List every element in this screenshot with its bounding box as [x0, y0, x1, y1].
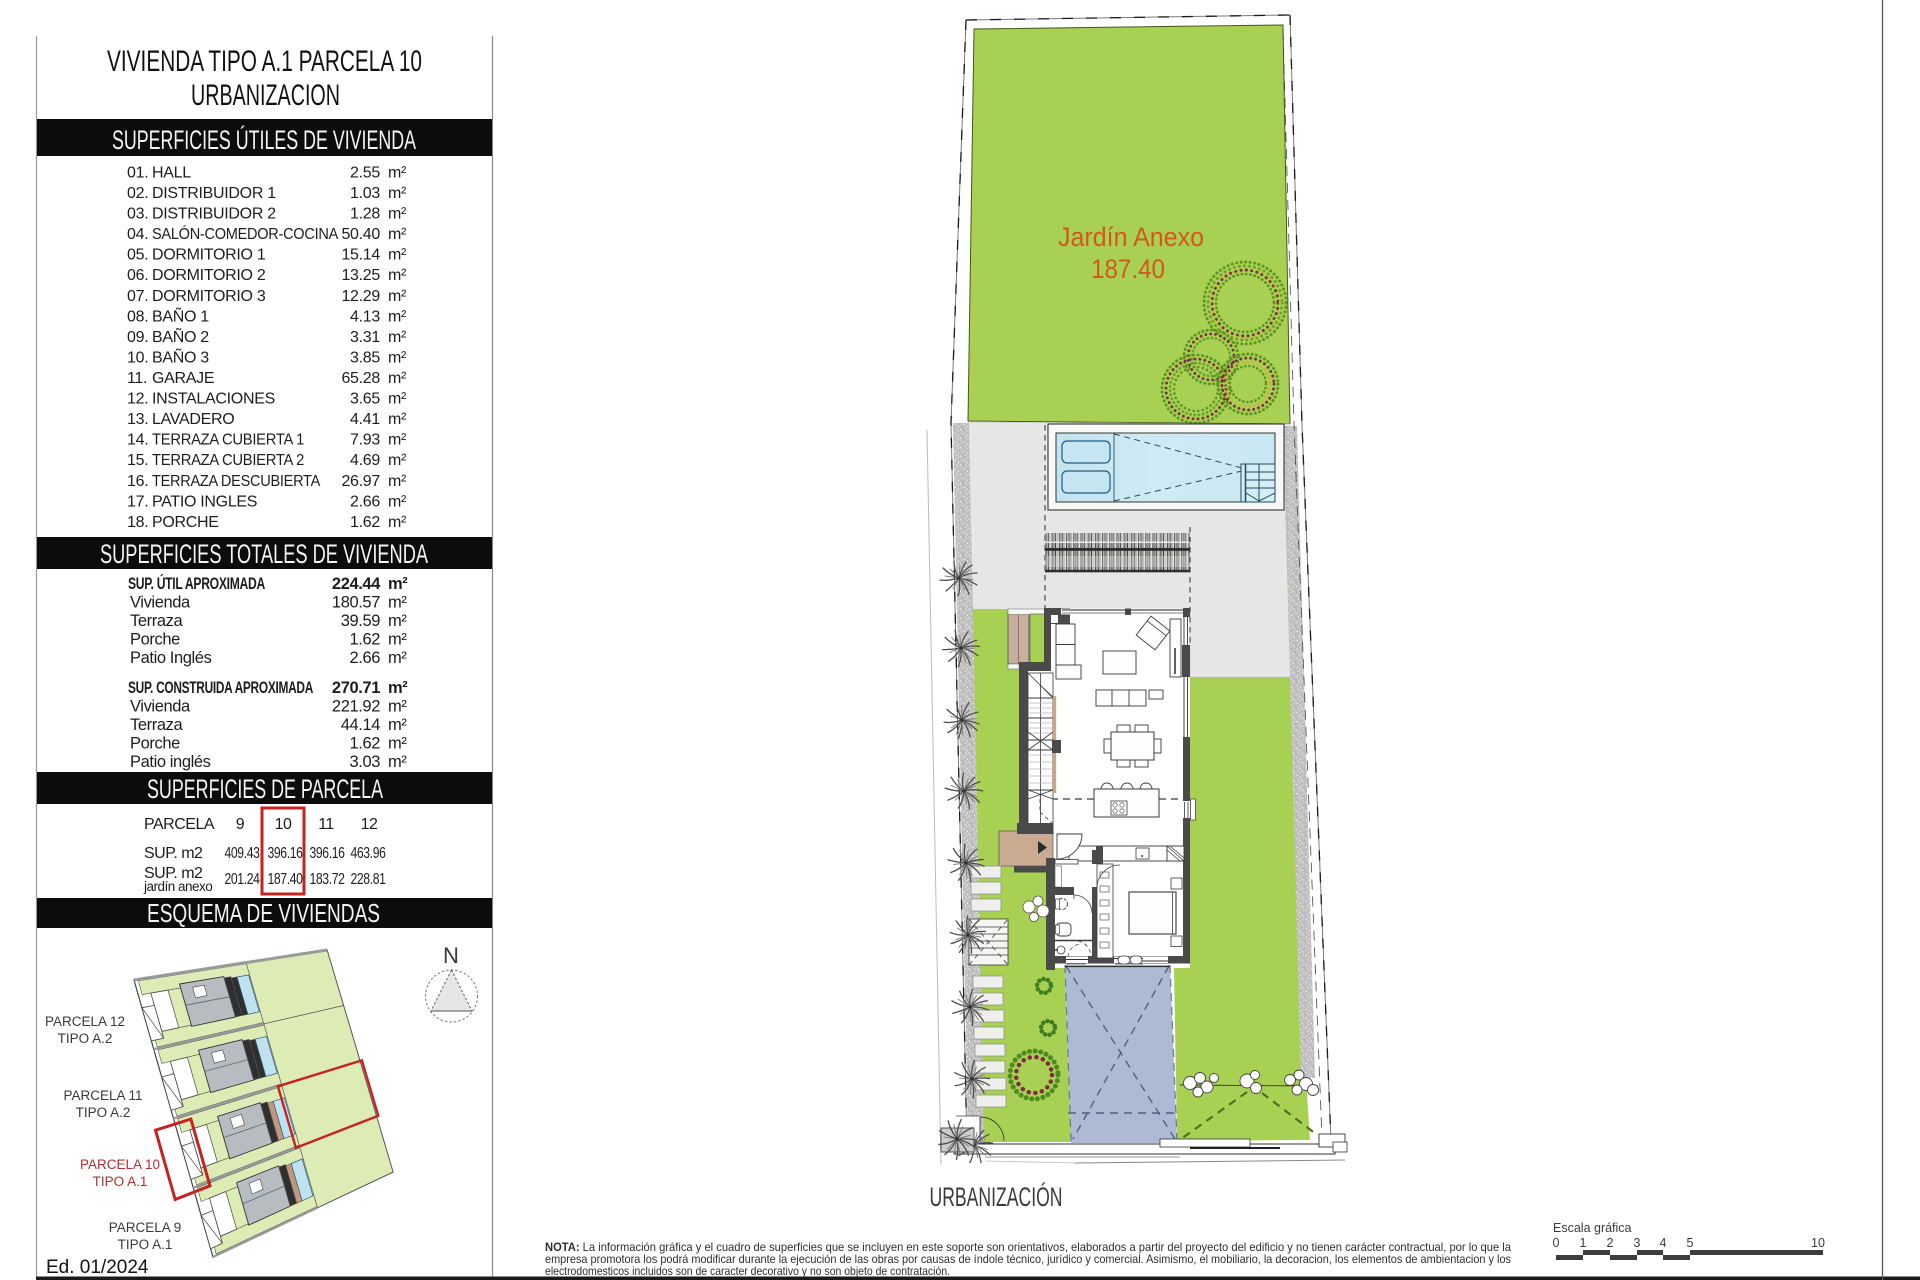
svg-text:BAÑO 1: BAÑO 1: [152, 305, 209, 325]
svg-text:2.55: 2.55: [350, 165, 380, 182]
svg-text:2.66: 2.66: [349, 649, 380, 667]
svg-text:m²: m²: [388, 452, 407, 469]
svg-text:PORCHE: PORCHE: [152, 514, 219, 531]
svg-text:m²: m²: [388, 575, 408, 593]
svg-text:187.40: 187.40: [268, 871, 304, 888]
svg-text:396.16: 396.16: [268, 845, 303, 862]
svg-text:m²: m²: [388, 165, 407, 182]
svg-text:11.: 11.: [127, 370, 147, 387]
svg-text:187.40: 187.40: [1091, 254, 1165, 284]
svg-text:N: N: [443, 943, 459, 968]
svg-text:m²: m²: [388, 473, 407, 490]
svg-text:1.62: 1.62: [349, 735, 380, 753]
svg-text:409.43: 409.43: [225, 845, 260, 862]
svg-text:11: 11: [318, 816, 334, 833]
svg-text:PARCELA: PARCELA: [144, 816, 215, 833]
svg-text:06.: 06.: [127, 267, 148, 284]
svg-text:m²: m²: [388, 185, 407, 202]
svg-text:SUP. CONSTRUIDA APROXIMADA: SUP. CONSTRUIDA APROXIMADA: [128, 679, 313, 697]
svg-text:m²: m²: [388, 206, 407, 223]
svg-text:12.: 12.: [127, 391, 148, 408]
svg-text:TERRAZA CUBIERTA 1: TERRAZA CUBIERTA 1: [152, 432, 304, 449]
svg-text:TIPO A.1: TIPO A.1: [93, 1174, 148, 1189]
svg-text:DORMITORIO 2: DORMITORIO 2: [152, 267, 266, 284]
svg-text:m²: m²: [388, 631, 407, 649]
svg-text:18.: 18.: [127, 514, 148, 531]
svg-text:HALL: HALL: [152, 165, 191, 182]
svg-text:15.14: 15.14: [341, 247, 380, 264]
svg-text:270.71: 270.71: [332, 679, 380, 697]
svg-text:DISTRIBUIDOR 1: DISTRIBUIDOR 1: [152, 185, 276, 202]
svg-text:44.14: 44.14: [341, 716, 381, 734]
svg-text:05.: 05.: [127, 247, 148, 264]
svg-text:m²: m²: [388, 493, 407, 510]
svg-text:01.: 01.: [127, 165, 148, 182]
svg-text:m²: m²: [388, 267, 407, 284]
svg-text:PARCELA 9: PARCELA 9: [109, 1220, 182, 1235]
svg-text:BAÑO 3: BAÑO 3: [152, 347, 209, 367]
svg-text:INSTALACIONES: INSTALACIONES: [152, 391, 275, 408]
svg-text:39.59: 39.59: [341, 612, 381, 630]
svg-text:Terraza: Terraza: [130, 612, 183, 630]
svg-text:DORMITORIO 1: DORMITORIO 1: [152, 247, 266, 264]
svg-text:m²: m²: [388, 514, 407, 531]
svg-text:9: 9: [236, 816, 245, 833]
svg-text:13.25: 13.25: [341, 267, 380, 284]
svg-text:m²: m²: [388, 350, 407, 367]
svg-text:16.: 16.: [127, 473, 148, 490]
svg-text:10.: 10.: [127, 350, 148, 367]
svg-text:URBANIZACION: URBANIZACION: [191, 79, 340, 112]
svg-text:26.97: 26.97: [341, 473, 380, 490]
svg-text:Porche: Porche: [130, 735, 180, 753]
svg-text:10: 10: [1811, 1236, 1825, 1250]
svg-text:08.: 08.: [127, 308, 148, 325]
svg-text:09.: 09.: [127, 329, 148, 346]
svg-text:m²: m²: [388, 247, 407, 264]
svg-text:PARCELA 10: PARCELA 10: [80, 1157, 160, 1172]
svg-text:1.03: 1.03: [350, 185, 380, 202]
svg-text:TIPO A.2: TIPO A.2: [58, 1031, 113, 1046]
svg-text:50.40: 50.40: [341, 226, 380, 243]
svg-text:3.31: 3.31: [350, 329, 380, 346]
svg-text:224.44: 224.44: [332, 575, 381, 593]
svg-text:1.62: 1.62: [350, 514, 380, 531]
svg-text:m²: m²: [388, 329, 407, 346]
svg-text:12: 12: [361, 816, 378, 833]
svg-text:Terraza: Terraza: [130, 716, 183, 734]
svg-text:jardín anexo: jardín anexo: [143, 879, 212, 894]
svg-text:ESQUEMA DE VIVIENDAS: ESQUEMA DE VIVIENDAS: [147, 898, 380, 928]
svg-text:7.93: 7.93: [350, 432, 380, 449]
svg-text:13.: 13.: [127, 411, 148, 428]
svg-text:m²: m²: [388, 308, 407, 325]
svg-text:201.24: 201.24: [225, 871, 261, 888]
svg-text:m²: m²: [388, 432, 407, 449]
svg-text:Jardín Anexo: Jardín Anexo: [1058, 222, 1204, 252]
svg-text:07.: 07.: [127, 288, 148, 305]
svg-text:65.28: 65.28: [341, 370, 380, 387]
svg-text:463.96: 463.96: [351, 845, 386, 862]
svg-text:2: 2: [1607, 1236, 1614, 1250]
svg-text:10: 10: [275, 816, 292, 833]
svg-text:3: 3: [1634, 1236, 1641, 1250]
svg-text:SUP. m2: SUP. m2: [144, 845, 203, 862]
svg-text:Escala gráfica: Escala gráfica: [1553, 1221, 1632, 1235]
svg-text:4.69: 4.69: [350, 452, 380, 469]
svg-text:URBANIZACIÓN: URBANIZACIÓN: [930, 1181, 1063, 1212]
svg-text:SUPERFICIES TOTALES DE VIVIEND: SUPERFICIES TOTALES DE VIVIENDA: [100, 539, 428, 569]
svg-text:TIPO A.1: TIPO A.1: [118, 1237, 173, 1252]
svg-text:m²: m²: [388, 698, 407, 716]
svg-text:LAVADERO: LAVADERO: [152, 411, 234, 428]
svg-text:3.65: 3.65: [350, 391, 380, 408]
svg-text:PARCELA 11: PARCELA 11: [63, 1088, 142, 1103]
svg-text:4.41: 4.41: [350, 411, 380, 428]
svg-text:SUPERFICIES DE PARCELA: SUPERFICIES DE PARCELA: [147, 774, 383, 804]
svg-text:1.28: 1.28: [350, 206, 380, 223]
svg-text:02.: 02.: [127, 185, 148, 202]
svg-text:Ed. 01/2024: Ed. 01/2024: [46, 1257, 149, 1278]
svg-text:183.72: 183.72: [310, 871, 345, 888]
svg-text:0: 0: [1553, 1236, 1560, 1250]
svg-text:SALÓN-COMEDOR-COCINA: SALÓN-COMEDOR-COCINA: [152, 224, 339, 243]
svg-text:VIVIENDA TIPO A.1 PARCELA 10: VIVIENDA TIPO A.1 PARCELA 10: [107, 45, 422, 78]
svg-text:1: 1: [1580, 1236, 1587, 1250]
svg-text:15.: 15.: [127, 452, 148, 469]
svg-text:m²: m²: [388, 649, 407, 667]
svg-text:SUP. ÚTIL APROXIMADA: SUP. ÚTIL APROXIMADA: [128, 574, 265, 593]
svg-text:m²: m²: [388, 411, 407, 428]
svg-text:m²: m²: [388, 288, 407, 305]
svg-text:3.03: 3.03: [349, 753, 380, 771]
svg-text:PARCELA 12: PARCELA 12: [45, 1014, 125, 1029]
svg-text:03.: 03.: [127, 206, 148, 223]
svg-text:180.57: 180.57: [332, 594, 380, 612]
svg-text:PATIO INGLES: PATIO INGLES: [152, 493, 257, 510]
svg-text:4: 4: [1660, 1236, 1667, 1250]
svg-text:5: 5: [1687, 1236, 1694, 1250]
svg-text:SUPERFICIES ÚTILES DE VIVIENDA: SUPERFICIES ÚTILES DE VIVIENDA: [112, 124, 416, 155]
svg-text:221.92: 221.92: [332, 698, 380, 716]
svg-text:12.29: 12.29: [341, 288, 380, 305]
svg-text:17.: 17.: [127, 493, 148, 510]
svg-text:Patio inglés: Patio inglés: [130, 753, 211, 771]
svg-text:3.85: 3.85: [350, 350, 380, 367]
svg-text:TIPO A.2: TIPO A.2: [76, 1105, 131, 1120]
svg-text:GARAJE: GARAJE: [152, 370, 214, 387]
svg-text:m²: m²: [388, 612, 407, 630]
svg-text:m²: m²: [388, 370, 407, 387]
svg-text:m²: m²: [388, 226, 407, 243]
svg-text:14.: 14.: [127, 432, 148, 449]
svg-text:4.13: 4.13: [350, 308, 380, 325]
svg-text:TERRAZA CUBIERTA 2: TERRAZA CUBIERTA 2: [152, 452, 304, 469]
svg-text:TERRAZA DESCUBIERTA: TERRAZA DESCUBIERTA: [152, 473, 321, 490]
svg-text:DISTRIBUIDOR 2: DISTRIBUIDOR 2: [152, 206, 276, 223]
svg-text:BAÑO 2: BAÑO 2: [152, 326, 209, 346]
svg-text:2.66: 2.66: [350, 493, 380, 510]
svg-text:1.62: 1.62: [349, 631, 380, 649]
svg-text:m²: m²: [388, 391, 407, 408]
svg-text:DORMITORIO 3: DORMITORIO 3: [152, 288, 266, 305]
svg-text:m²: m²: [388, 594, 407, 612]
svg-text:m²: m²: [388, 679, 408, 697]
svg-text:396.16: 396.16: [310, 845, 345, 862]
svg-text:04.: 04.: [127, 226, 148, 243]
svg-text:m²: m²: [388, 753, 407, 771]
svg-text:Porche: Porche: [130, 631, 180, 649]
svg-text:electrodomesticos incluidos so: electrodomesticos incluidos son de carac…: [545, 1264, 950, 1278]
svg-text:228.81: 228.81: [351, 871, 386, 888]
svg-text:m²: m²: [388, 735, 407, 753]
svg-text:m²: m²: [388, 716, 407, 734]
svg-text:Vivienda: Vivienda: [130, 698, 191, 716]
svg-text:Patio Inglés: Patio Inglés: [130, 649, 212, 667]
svg-text:Vivienda: Vivienda: [130, 594, 191, 612]
